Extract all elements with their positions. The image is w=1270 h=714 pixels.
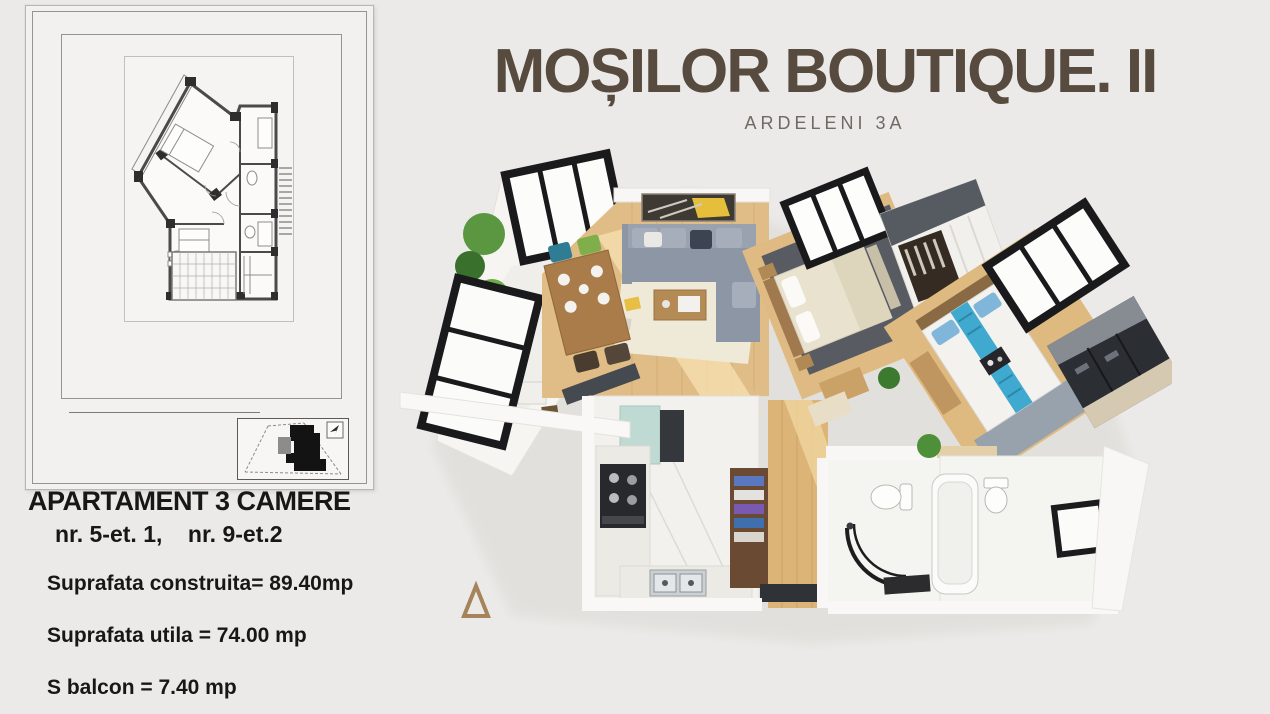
plant-bedroom1 (878, 367, 900, 389)
kitchen-stove (600, 464, 646, 528)
apartment-areas: Suprafata construita= 89.40mp Suprafata … (47, 571, 353, 701)
coffee-table (654, 290, 706, 320)
toilet-1 (871, 484, 912, 510)
flyer-page: { "page": { "background_color": "#ebeae8… (0, 0, 1270, 714)
north-arrow-icon (327, 422, 343, 438)
title-block: MOȘILOR BOUTIQUE. II ARDELENI 3A (415, 0, 1235, 150)
floorplan-2d-drawing (124, 56, 296, 324)
floorplan-3d-render (392, 146, 1172, 651)
plan-terrace (172, 252, 236, 300)
wooden-easel (464, 586, 488, 616)
apartment-heading: APARTAMENT 3 CAMERE (28, 486, 351, 517)
wall-bath1-left (817, 458, 828, 608)
sheet-separator-line (69, 412, 260, 413)
wall-kitchen-left (582, 396, 594, 606)
site-plan (237, 418, 349, 480)
wall-bath-bottom (828, 601, 1118, 614)
area-line-built: Suprafata construita= 89.40mp (47, 572, 353, 595)
wall-art (642, 194, 735, 221)
project-title: MOȘILOR BOUTIQUE. II (415, 0, 1235, 107)
kitchen-sink (650, 570, 706, 596)
project-subtitle: ARDELENI 3A (415, 113, 1235, 134)
bathtub (932, 474, 978, 594)
area-line-balcony: S balcon = 7.40 mp (47, 676, 237, 699)
wall-kitchen-bottom (582, 598, 762, 611)
plant-hall (917, 434, 941, 458)
pantry-shelves (730, 468, 768, 588)
site-building-wing (294, 461, 322, 471)
toilet-2 (984, 478, 1008, 513)
kitchen-tall-unit (660, 410, 684, 462)
area-line-usable: Suprafata utila = 74.00 mp (47, 624, 307, 647)
bathroom-2 (932, 456, 1115, 606)
plan-sheet (25, 5, 374, 490)
site-unit-highlight (278, 437, 291, 454)
apartment-units: nr. 5-et. 1, nr. 9-et.2 (55, 521, 283, 548)
site-plan-map (238, 419, 346, 477)
